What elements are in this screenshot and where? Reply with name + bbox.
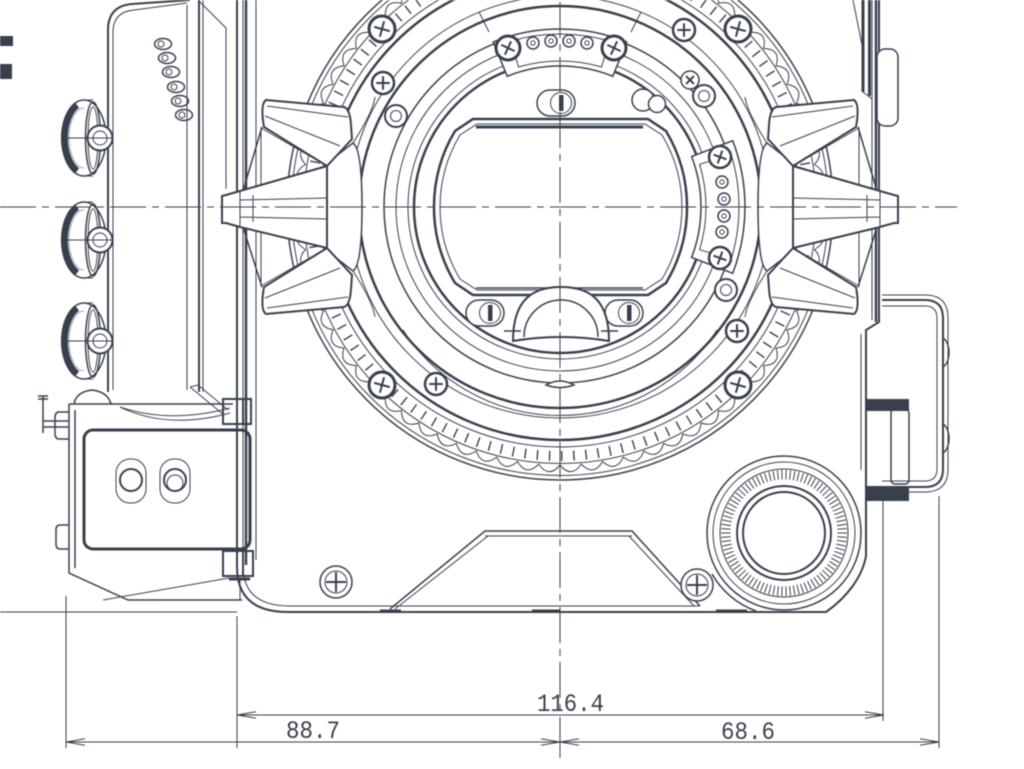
svg-text:68.6: 68.6 — [721, 718, 775, 747]
svg-text:88.7: 88.7 — [286, 717, 340, 746]
svg-text:116.4: 116.4 — [537, 690, 604, 719]
